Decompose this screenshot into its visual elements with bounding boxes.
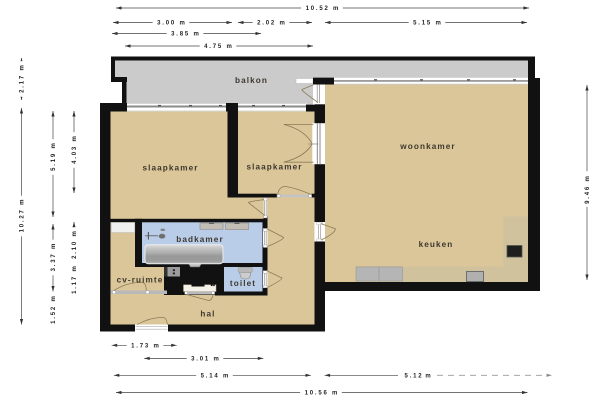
svg-text:9.46 m: 9.46 m <box>585 174 591 203</box>
svg-text:badkamer: badkamer <box>176 235 223 244</box>
svg-text:1.17 m: 1.17 m <box>72 264 78 293</box>
svg-text:3.00 m: 3.00 m <box>157 21 186 27</box>
svg-text:m: m <box>425 374 432 380</box>
svg-text:2.17 m: 2.17 m <box>20 63 26 92</box>
svg-text:5.19 m: 5.19 m <box>51 141 57 170</box>
svg-text:toilet: toilet <box>230 279 256 288</box>
svg-text:5.14 m: 5.14 m <box>201 374 230 380</box>
svg-text:10.27 m: 10.27 m <box>20 198 26 233</box>
svg-text:2.10 m: 2.10 m <box>72 229 78 258</box>
svg-text:hal: hal <box>200 310 215 319</box>
svg-text:5.15 m: 5.15 m <box>413 21 442 27</box>
svg-text:10.56 m: 10.56 m <box>305 391 340 397</box>
svg-text:3.01 m: 3.01 m <box>191 357 220 363</box>
svg-text:cv-ruimte: cv-ruimte <box>117 276 164 285</box>
svg-text:keuken: keuken <box>419 240 454 249</box>
svg-text:2.02 m: 2.02 m <box>257 21 286 27</box>
svg-text:slaapkamer: slaapkamer <box>246 163 302 172</box>
svg-text:1.73 m: 1.73 m <box>131 344 160 350</box>
svg-text:10.52 m: 10.52 m <box>306 6 341 12</box>
svg-text:3.37 m: 3.37 m <box>51 242 57 271</box>
svg-text:5.12: 5.12 <box>405 374 424 380</box>
svg-text:balkon: balkon <box>235 76 268 85</box>
svg-text:3.85 m: 3.85 m <box>171 32 200 38</box>
svg-text:woonkamer: woonkamer <box>399 142 455 151</box>
svg-text:4.75 m: 4.75 m <box>204 44 233 50</box>
svg-text:1.52 m: 1.52 m <box>51 294 57 323</box>
svg-text:slaapkamer: slaapkamer <box>142 164 198 173</box>
svg-text:4.03 m: 4.03 m <box>72 134 78 163</box>
